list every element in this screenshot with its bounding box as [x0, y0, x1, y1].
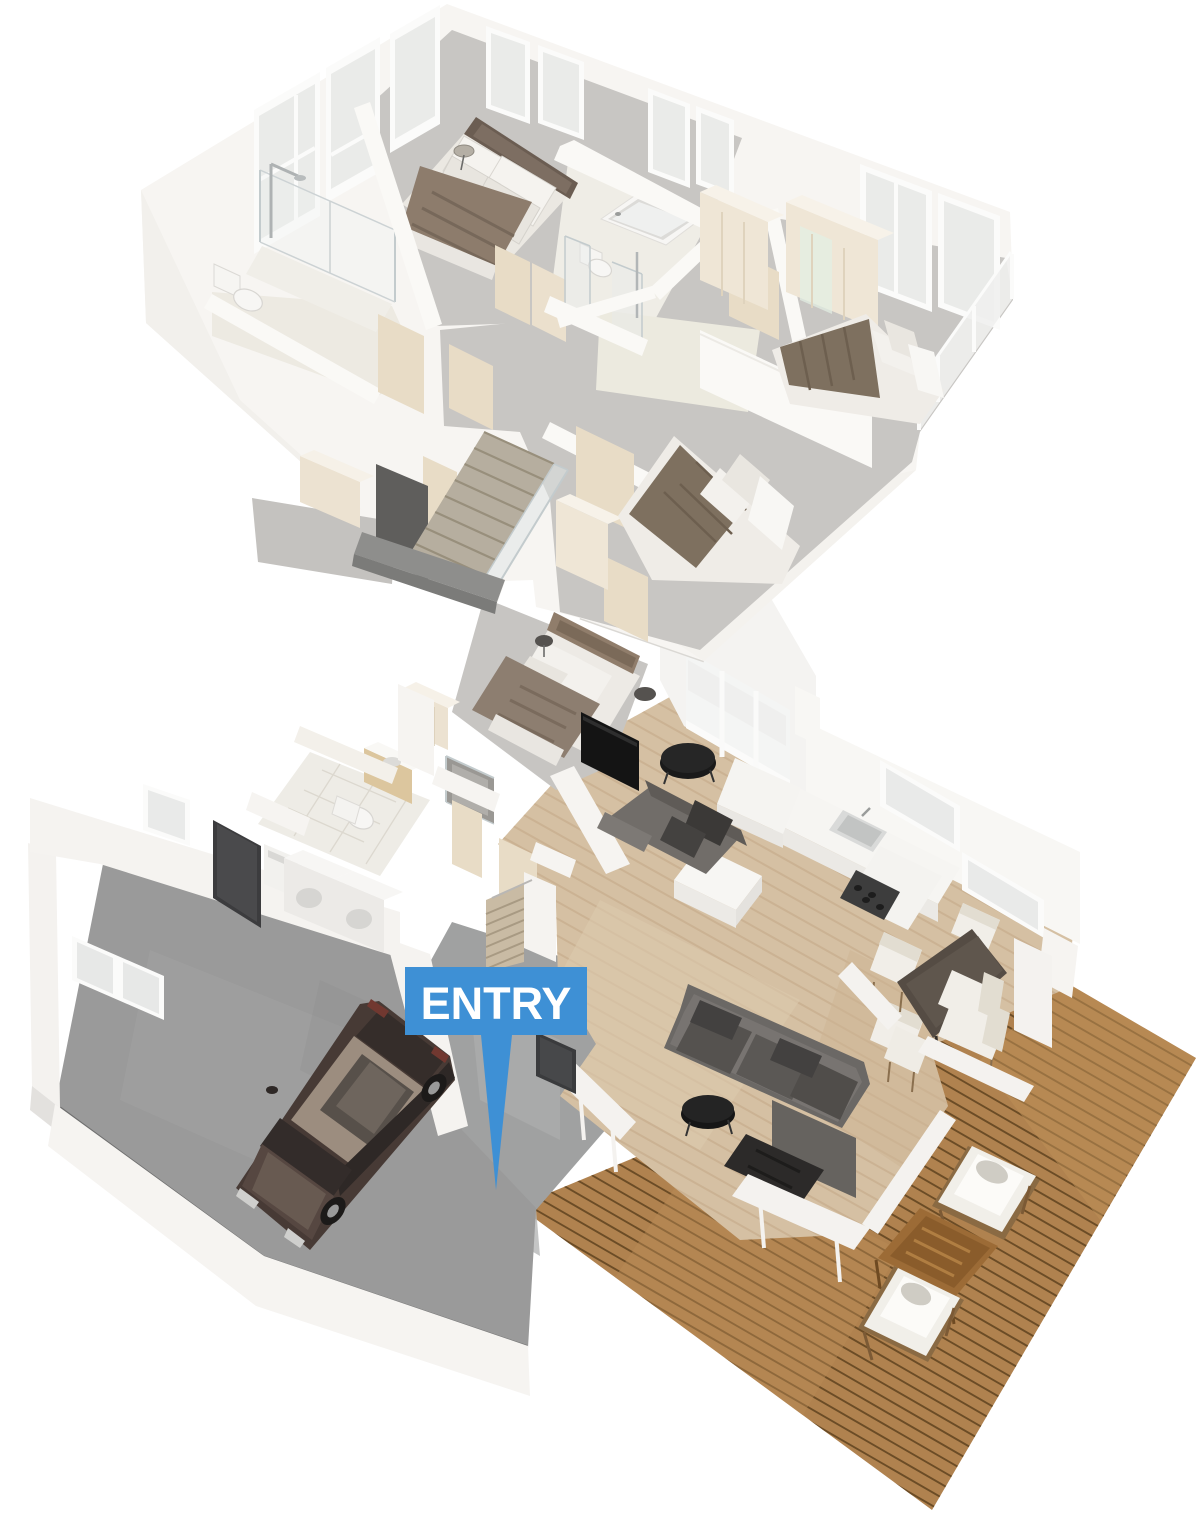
- svg-text:ENTRY: ENTRY: [421, 978, 572, 1029]
